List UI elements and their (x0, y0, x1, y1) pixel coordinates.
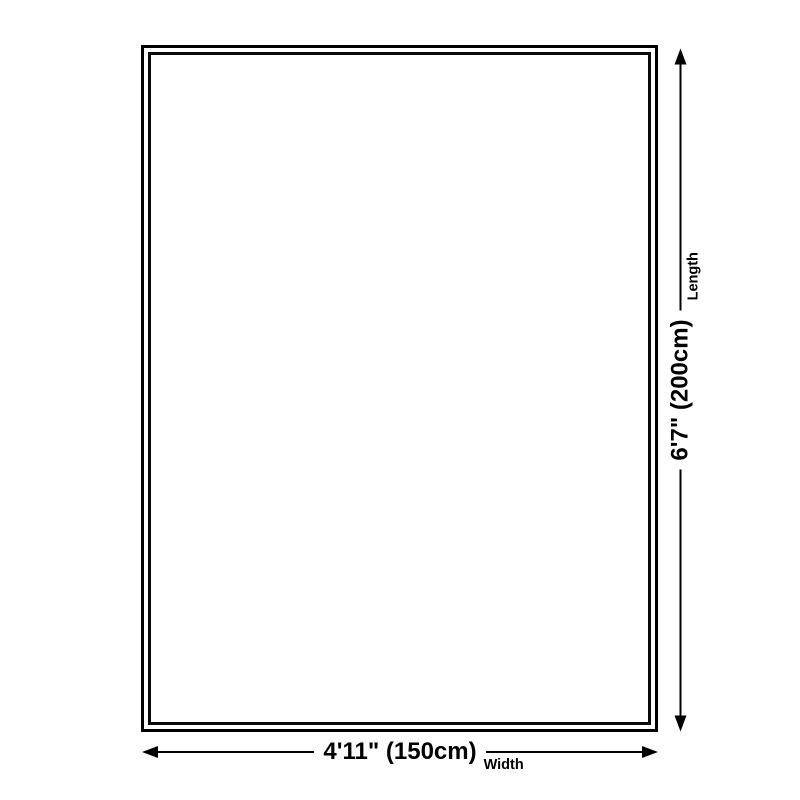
width-dimension: 4'11" (150cm) Width (142, 730, 658, 774)
arrow-left-icon (142, 746, 158, 758)
arrow-right-icon (642, 746, 658, 758)
length-value: 6'7" (200cm) (667, 319, 694, 460)
length-dimension: 6'7" (200cm) Length (659, 49, 703, 732)
length-label: Length (687, 252, 702, 300)
dimension-line (158, 751, 314, 753)
rug-outline (141, 45, 658, 732)
width-dimension-segment-left (142, 730, 314, 774)
length-dimension-segment-lower (659, 470, 703, 732)
width-label: Width (484, 758, 524, 773)
arrow-down-icon (675, 716, 687, 732)
width-value: 4'11" (150cm) (323, 738, 476, 765)
product-size-diagram: 6'7" (200cm) Length 4'11" (150cm) Width (0, 0, 800, 800)
dimension-line (486, 751, 642, 753)
dimension-line (680, 64, 682, 310)
width-value-group: 4'11" (150cm) Width (314, 730, 485, 774)
rug-inner-border (148, 52, 651, 725)
dimension-line (680, 470, 682, 716)
length-value-group: 6'7" (200cm) Length (659, 310, 703, 469)
arrow-up-icon (675, 48, 687, 64)
